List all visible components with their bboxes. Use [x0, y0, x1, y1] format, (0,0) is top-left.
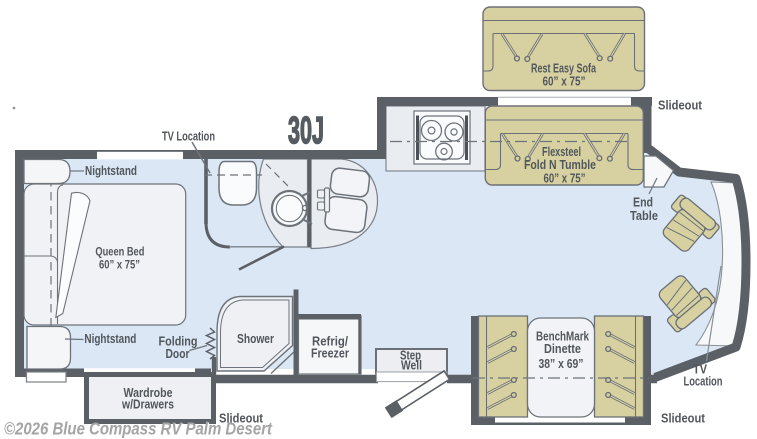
svg-text:Rest Easy Sofa: Rest Easy Sofa: [531, 62, 597, 76]
svg-text:End: End: [633, 196, 653, 210]
svg-text:Queen Bed: Queen Bed: [95, 247, 144, 259]
svg-text:Nightstand: Nightstand: [85, 164, 137, 178]
svg-text:Flexsteel: Flexsteel: [542, 145, 581, 159]
svg-text:Table: Table: [630, 209, 658, 223]
svg-text:Slideout: Slideout: [658, 99, 703, 113]
svg-text:©2026 Blue Compass RV Palm Des: ©2026 Blue Compass RV Palm Desert: [4, 419, 273, 439]
svg-text:w/Drawers: w/Drawers: [121, 398, 174, 412]
svg-text:Freezer: Freezer: [311, 347, 349, 361]
svg-text:30J: 30J: [288, 110, 324, 152]
svg-text:60” x 75”: 60” x 75”: [543, 75, 586, 89]
svg-text:60” x 75”: 60” x 75”: [544, 172, 586, 186]
svg-text:Shower: Shower: [237, 332, 274, 346]
svg-text:Nightstand: Nightstand: [84, 332, 136, 346]
svg-text:TV Location: TV Location: [162, 130, 215, 144]
svg-text:38” x 69”: 38” x 69”: [539, 357, 584, 371]
svg-text:Well: Well: [401, 359, 422, 373]
svg-text:Slideout: Slideout: [661, 412, 706, 426]
svg-text:Dinette: Dinette: [544, 342, 581, 356]
svg-text:Door: Door: [166, 347, 190, 361]
svg-text:Location: Location: [684, 375, 723, 389]
svg-text:60” x 75”: 60” x 75”: [99, 260, 140, 272]
svg-text:Fold N Tumble: Fold N Tumble: [524, 158, 596, 172]
